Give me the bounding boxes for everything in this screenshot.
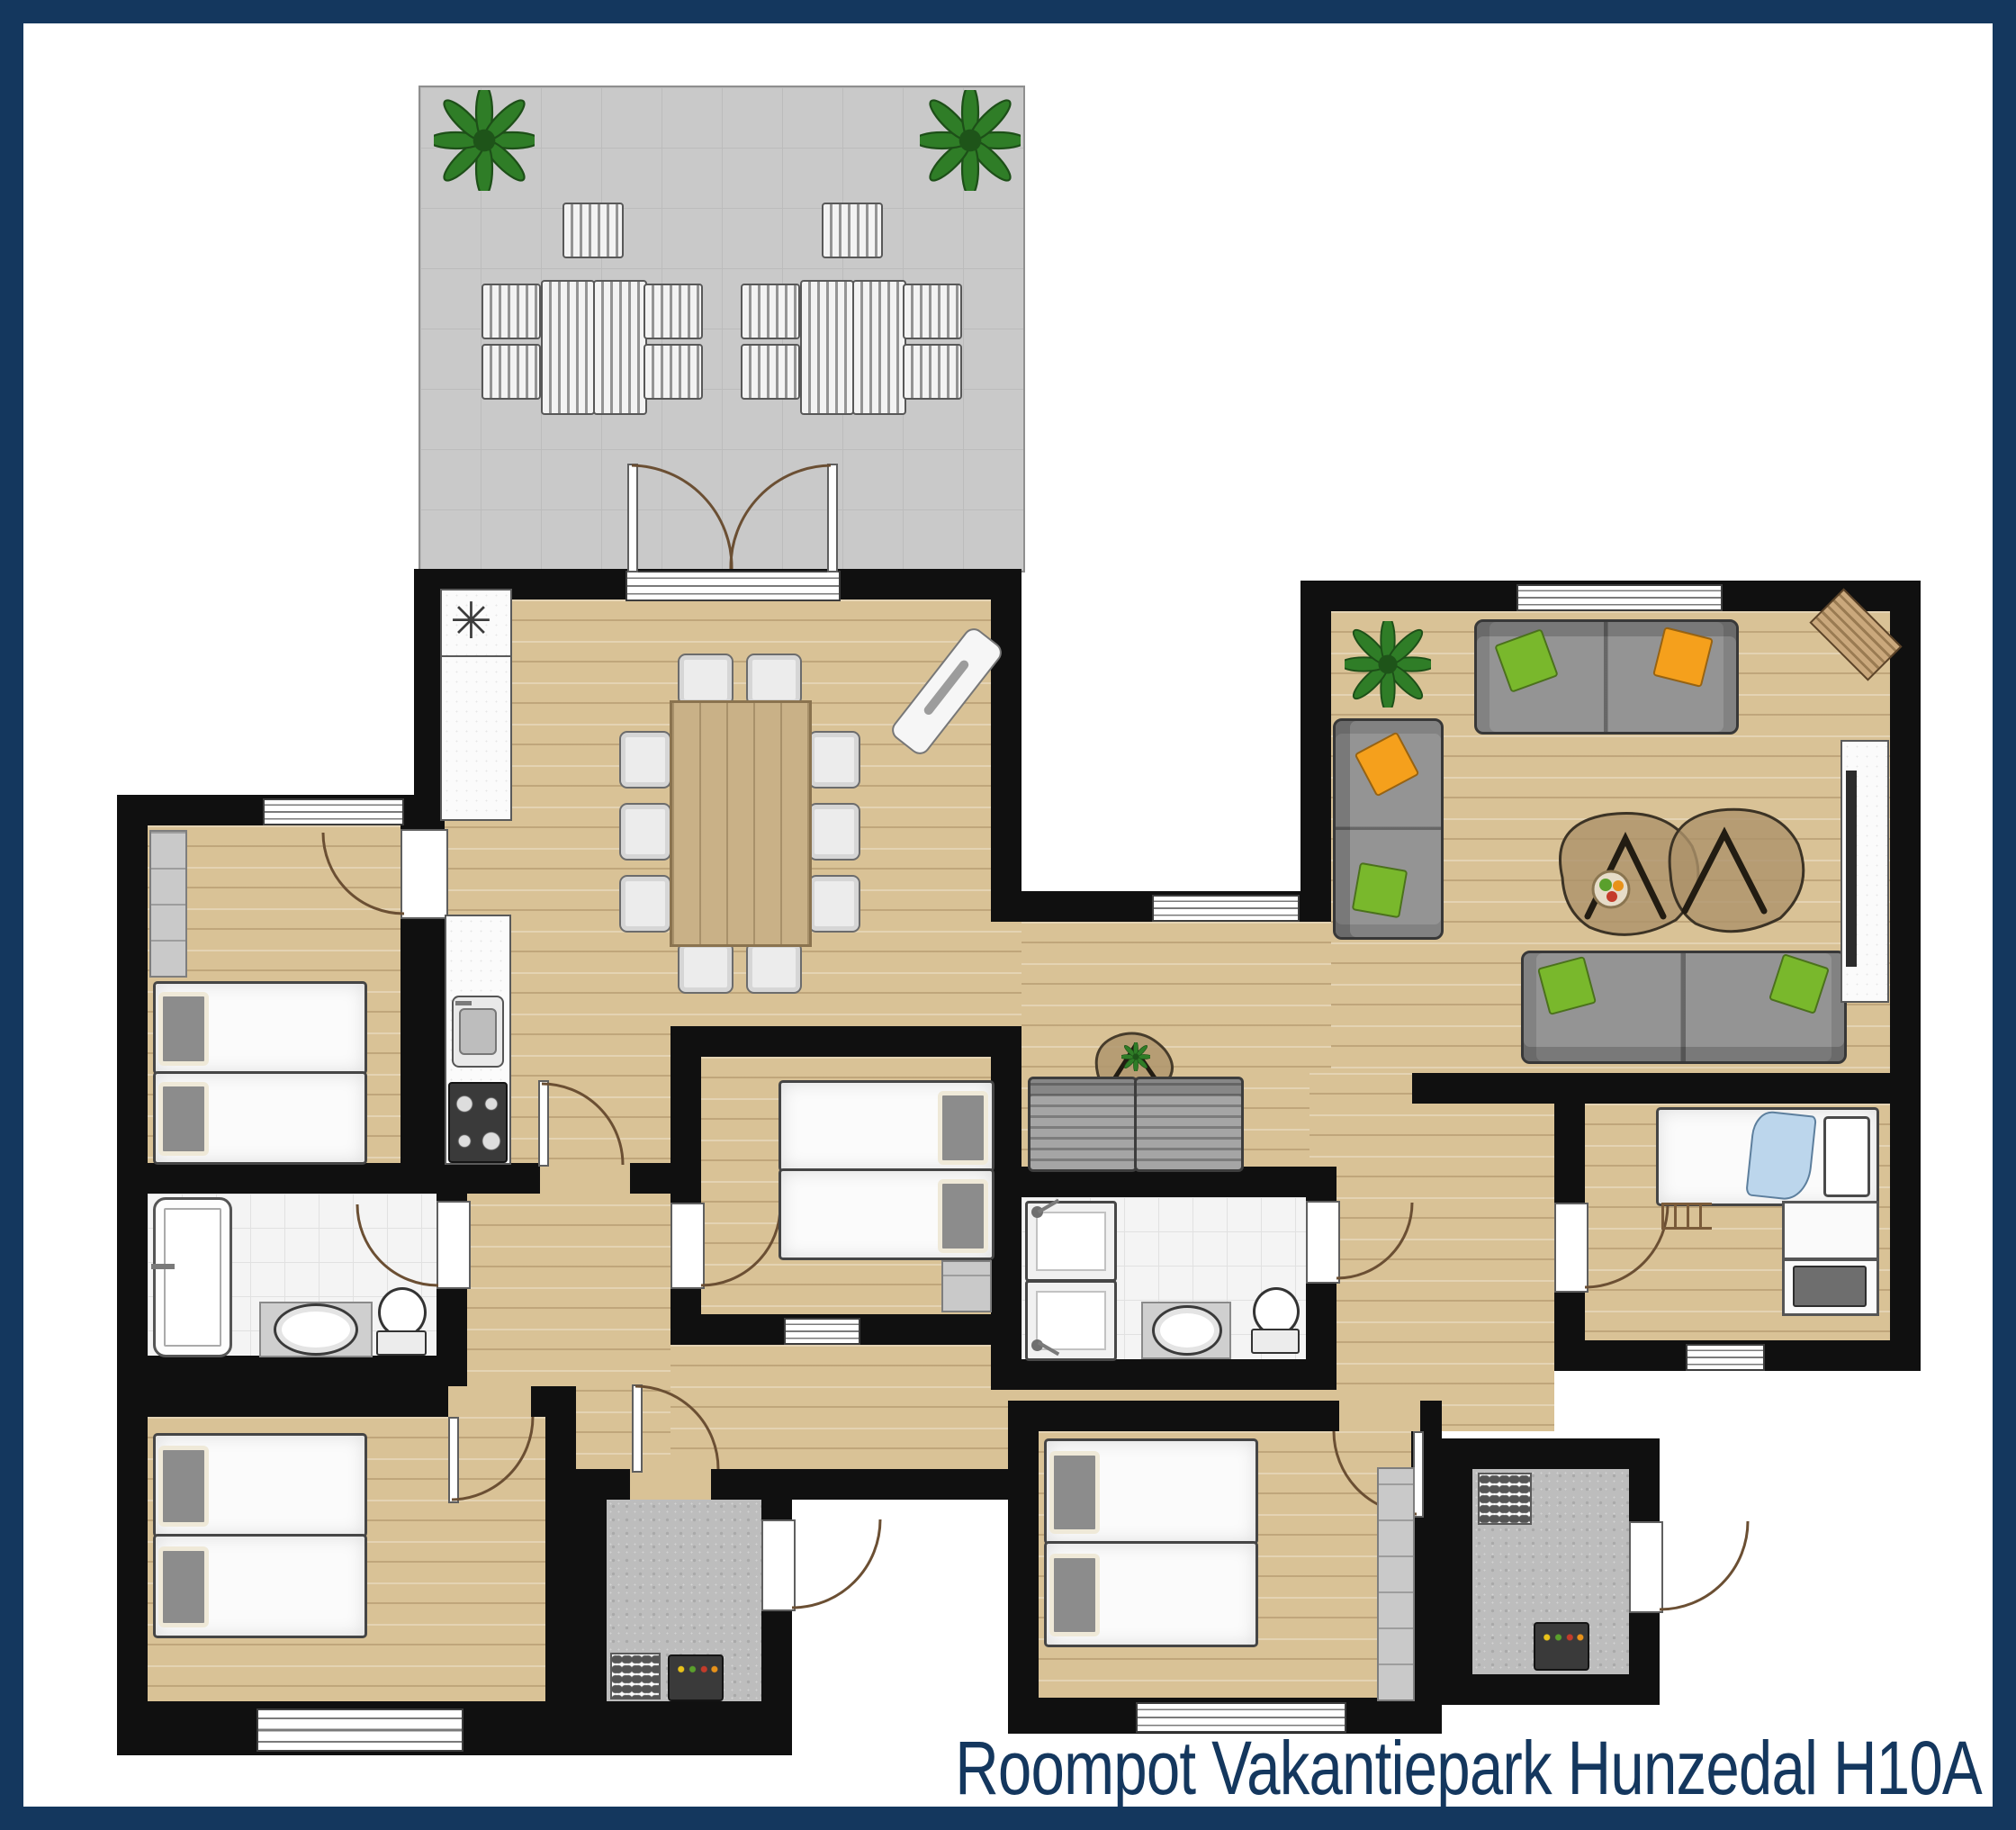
garden-chair	[822, 203, 883, 258]
wall	[1442, 1438, 1660, 1469]
toilet-tank	[1251, 1329, 1300, 1354]
stove	[448, 1082, 508, 1163]
garden-lounger	[593, 280, 647, 415]
fuse-panel	[1534, 1622, 1589, 1671]
door-leaf	[436, 1201, 471, 1289]
wall	[670, 1026, 701, 1345]
wall	[761, 1469, 1008, 1500]
washing-machine	[1478, 1473, 1532, 1525]
wall	[1442, 1674, 1660, 1705]
dining-chair	[808, 803, 860, 861]
bed-pillow	[1049, 1554, 1100, 1636]
garden-lounger	[852, 280, 906, 415]
bed-pillow	[1049, 1451, 1100, 1534]
door-leaf	[627, 464, 638, 572]
bed-pillow	[938, 1179, 988, 1253]
garden-chair	[481, 344, 541, 400]
washbasin	[274, 1303, 358, 1356]
wall	[1300, 581, 1331, 922]
door-leaf	[400, 829, 448, 919]
garden-chair	[562, 203, 624, 258]
front-door-leaf	[1629, 1521, 1663, 1613]
wall	[117, 795, 148, 1755]
tv-icon	[1846, 771, 1857, 967]
floor-plan: ✳	[0, 0, 2016, 1830]
bed-pillow	[1823, 1116, 1870, 1197]
bathtub	[153, 1197, 232, 1357]
garden-chair	[741, 344, 800, 400]
door-arc	[1660, 1521, 1748, 1609]
wall	[1442, 1438, 1472, 1705]
garden-lounger	[800, 280, 854, 415]
door-arc	[792, 1519, 880, 1608]
fuse-panel	[668, 1654, 724, 1701]
garden-chair	[643, 284, 703, 339]
garden-chair	[481, 284, 541, 339]
door-leaf	[632, 1384, 643, 1473]
dining-table	[670, 700, 812, 947]
window	[1686, 1344, 1765, 1371]
dresser	[1782, 1201, 1879, 1260]
bed-pillow	[158, 1446, 209, 1527]
floor-hall-right	[1309, 1073, 1554, 1431]
garden-chair	[643, 344, 703, 400]
wardrobe	[149, 830, 187, 978]
dining-chair	[808, 875, 860, 933]
boiler-asterisk: ✳	[450, 596, 492, 646]
window	[625, 571, 841, 601]
dining-chair	[619, 803, 671, 861]
nightstand	[941, 1260, 992, 1312]
window	[263, 798, 404, 825]
wall	[1412, 1073, 1921, 1104]
garden-chair	[741, 284, 800, 339]
faucet-icon	[151, 1264, 175, 1269]
dining-chair	[746, 942, 802, 994]
door-leaf	[1306, 1201, 1340, 1284]
dining-chair	[678, 654, 733, 706]
plant-icon	[434, 90, 535, 191]
door-opening	[540, 1163, 630, 1194]
wall	[1008, 1401, 1039, 1734]
bed-pillow	[158, 992, 209, 1066]
garden-chair	[903, 284, 962, 339]
wall	[991, 569, 1021, 922]
door-leaf	[670, 1203, 705, 1289]
dining-chair	[619, 875, 671, 933]
kitchen-cabinet	[440, 655, 512, 821]
door-opening	[630, 1469, 711, 1500]
wall	[545, 1386, 576, 1701]
bed-pillow	[158, 1546, 209, 1627]
wall	[670, 1026, 1021, 1057]
cushion-green	[1352, 862, 1408, 919]
garden-chair	[903, 344, 962, 400]
caption-title: Roompot Vakantiepark Hunzedal H10A	[955, 1725, 1982, 1812]
dining-chair	[678, 942, 733, 994]
garden-lounger	[541, 280, 595, 415]
toilet-tank	[376, 1330, 427, 1356]
window	[256, 1708, 463, 1752]
door-leaf	[538, 1080, 549, 1167]
hall-bench	[1134, 1077, 1244, 1172]
window	[1516, 584, 1723, 611]
wall	[991, 1359, 1336, 1390]
front-door-leaf	[761, 1519, 796, 1611]
window	[1152, 895, 1300, 922]
dining-chair	[808, 731, 860, 789]
dining-chair	[619, 731, 671, 789]
door-leaf	[1554, 1203, 1588, 1293]
door-opening	[448, 1386, 531, 1417]
dining-chair	[746, 654, 802, 706]
bed-pillow	[158, 1082, 209, 1156]
plant-icon	[1121, 1042, 1150, 1071]
wall	[576, 1469, 607, 1701]
washbasin	[1152, 1305, 1222, 1356]
wardrobe	[1377, 1467, 1415, 1701]
washing-machine	[610, 1653, 661, 1699]
window	[784, 1318, 860, 1345]
wall	[117, 1163, 467, 1194]
wall	[1890, 581, 1921, 1371]
plant-icon	[1345, 621, 1431, 708]
bed-pillow	[938, 1091, 988, 1165]
plant-icon	[920, 90, 1021, 191]
bed-step	[1661, 1203, 1712, 1230]
faucet-icon	[455, 1001, 472, 1005]
door-leaf	[827, 464, 838, 572]
hall-bench	[1028, 1077, 1138, 1172]
wall	[117, 1356, 467, 1386]
wall	[761, 1469, 792, 1755]
door-leaf	[448, 1417, 459, 1503]
dresser-cushion	[1793, 1266, 1867, 1307]
door-opening	[1339, 1401, 1420, 1431]
kitchen-sink-basin	[459, 1008, 497, 1055]
